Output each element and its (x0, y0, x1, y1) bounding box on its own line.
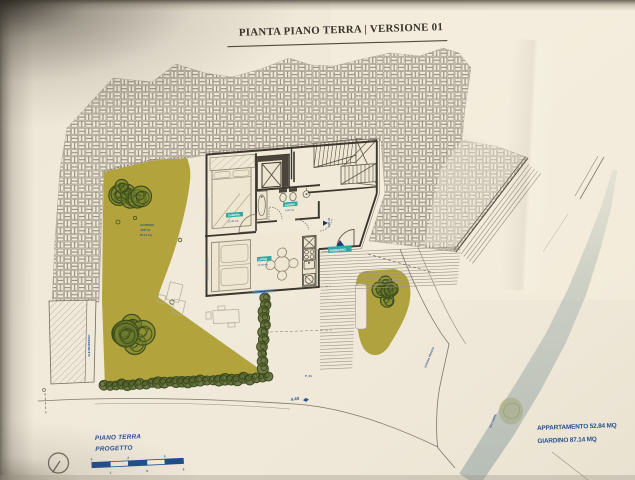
svg-text:87.14 mq: 87.14 mq (140, 233, 152, 237)
svg-text:APP. 01: APP. 01 (141, 228, 151, 232)
svg-text:GIARDINO: GIARDINO (140, 223, 155, 227)
svg-text:P_01: P_01 (305, 374, 312, 378)
svg-text:APP. 01: APP. 01 (327, 217, 331, 227)
svg-text:V.LE PROPERZIO: V.LE PROPERZIO (87, 335, 91, 357)
